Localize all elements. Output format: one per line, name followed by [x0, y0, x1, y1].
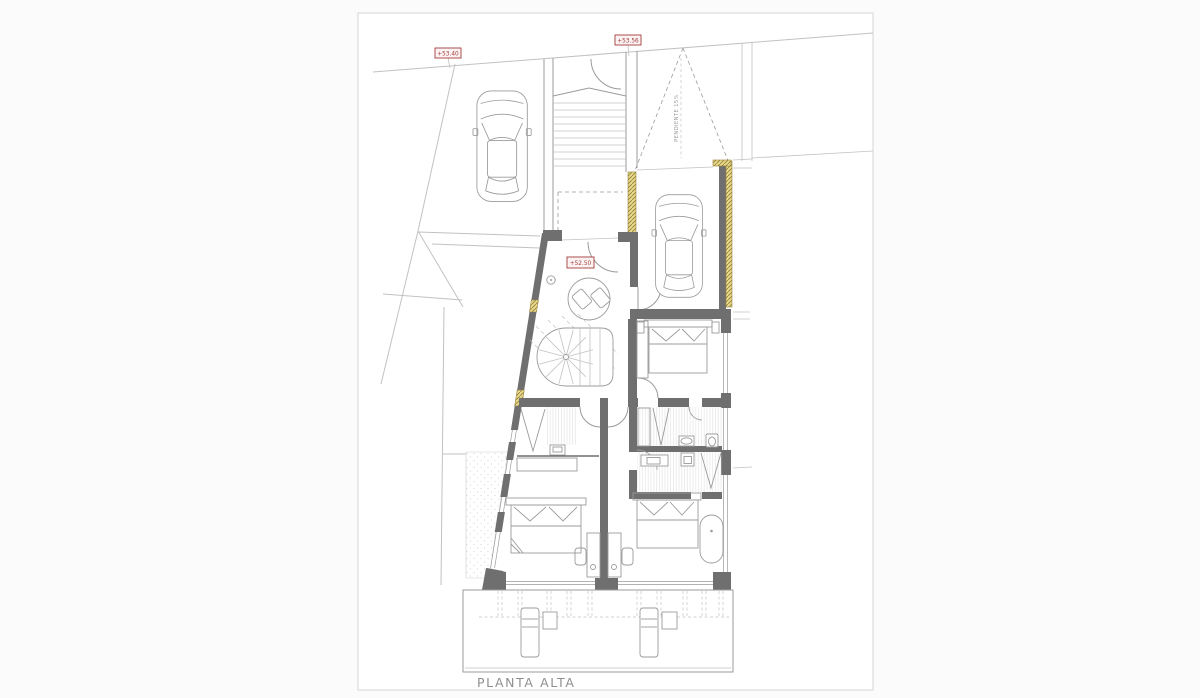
level-mark-3: +52.50: [567, 257, 594, 268]
car-garage: [652, 195, 706, 298]
garage-wall-yellow-left: [628, 172, 636, 233]
side-table-1: [543, 612, 557, 629]
bathtub: [700, 515, 723, 563]
facade-yellow-1: [530, 300, 539, 312]
garage-wall-yellow-right: [726, 161, 732, 307]
ramp-label: PENDIENTE 15%: [674, 94, 680, 142]
level-mark-1: +53.40: [435, 48, 461, 58]
toilet-b: [681, 453, 694, 466]
svg-text:+53.40: +53.40: [437, 52, 459, 58]
sink-bedroom-2: [550, 445, 565, 455]
toilet-a: [706, 434, 718, 447]
floor-plan-canvas: PENDIENTE 15%: [0, 0, 1200, 698]
level-mark-2: +53.56: [615, 35, 641, 45]
sun-lounger-2: [640, 608, 658, 657]
bathroom-a: [637, 407, 722, 447]
side-table-2: [662, 612, 677, 629]
svg-text:+53.56: +53.56: [617, 39, 639, 45]
center-wall: [600, 398, 608, 583]
bathroom-b: [637, 452, 722, 492]
garage-wall-yellow-top: [713, 160, 731, 166]
sun-lounger-1: [521, 608, 539, 657]
floor-plan-svg: PENDIENTE 15%: [0, 0, 1200, 698]
plan-title: PLANTA ALTA: [477, 675, 576, 690]
svg-text:+52.50: +52.50: [570, 261, 592, 267]
car-driveway: [473, 91, 531, 202]
